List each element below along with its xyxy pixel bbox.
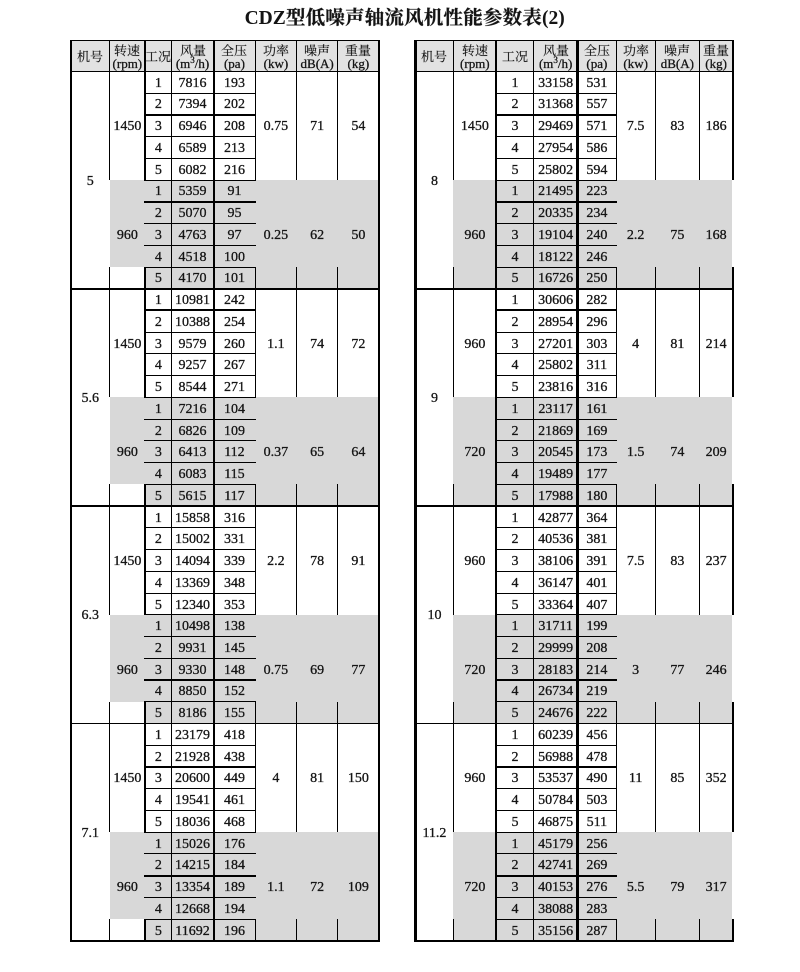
svg-text:CDZ: CDZ: [245, 8, 286, 29]
svg-text:(2): (2): [542, 8, 565, 29]
